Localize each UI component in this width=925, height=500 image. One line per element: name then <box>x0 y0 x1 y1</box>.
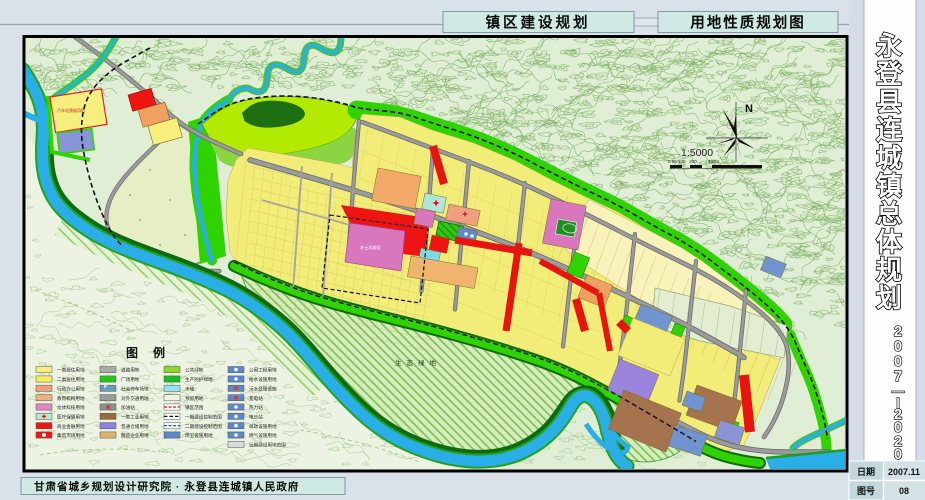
svg-text:远期建设用地范围: 远期建设用地范围 <box>249 442 286 449</box>
svg-text:1:5000: 1:5000 <box>681 147 713 159</box>
svg-text:甘肃省城乡规划设计研究院 · 永登县连城镇人民政府: 甘肃省城乡规划设计研究院 · 永登县连城镇人民政府 <box>34 480 299 493</box>
svg-text:镇区范围: 镇区范围 <box>185 404 204 411</box>
svg-text:生产防护绿地: 生产防护绿地 <box>185 376 213 383</box>
svg-text:公共绿地: 公共绿地 <box>185 367 204 374</box>
svg-text:N: N <box>745 103 753 115</box>
svg-text:镇: 镇 <box>876 171 902 201</box>
svg-text:给水设施用地: 给水设施用地 <box>249 376 277 383</box>
svg-text:预留用地: 预留用地 <box>185 395 204 402</box>
svg-text:医疗保健用地: 医疗保健用地 <box>57 413 85 420</box>
svg-text:公用工程用地: 公用工程用地 <box>249 367 277 374</box>
svg-text:永: 永 <box>876 31 902 61</box>
svg-text:集贸市场用地: 集贸市场用地 <box>57 432 85 439</box>
svg-text:7: 7 <box>894 368 902 385</box>
svg-text:规: 规 <box>876 255 902 285</box>
svg-text:燃气设施用地: 燃气设施用地 <box>249 432 277 439</box>
svg-text:道路用地: 道路用地 <box>121 367 140 374</box>
svg-text:热力站: 热力站 <box>249 404 263 411</box>
svg-text:一类工业用地: 一类工业用地 <box>121 413 149 420</box>
svg-text:登: 登 <box>875 59 903 89</box>
svg-text:社会停车场地: 社会停车场地 <box>121 385 149 392</box>
svg-text:酿造企业用地: 酿造企业用地 <box>121 432 149 439</box>
svg-text:2007.11: 2007.11 <box>888 467 920 477</box>
svg-text:广场用地: 广场用地 <box>121 376 140 383</box>
svg-text:图例: 图例 <box>126 345 180 360</box>
svg-text:城: 城 <box>876 143 902 173</box>
svg-text:普通仓储用地: 普通仓储用地 <box>121 423 149 430</box>
svg-text:一期建设控制范围: 一期建设控制范围 <box>185 413 222 420</box>
svg-text:教育机构用地: 教育机构用地 <box>57 395 85 402</box>
svg-text:对外交通用地: 对外交通用地 <box>121 395 149 402</box>
svg-text:图号: 图号 <box>857 486 875 496</box>
svg-text:P: P <box>104 384 107 389</box>
svg-text:体: 体 <box>876 227 903 257</box>
svg-text:08: 08 <box>899 486 909 496</box>
svg-text:加油站: 加油站 <box>121 404 135 411</box>
svg-text:行政办公用地: 行政办公用地 <box>57 385 85 392</box>
svg-text:二类居住用地: 二类居住用地 <box>57 376 85 383</box>
svg-text:划: 划 <box>876 283 902 313</box>
svg-text:0 50 100 200 400m: 0 50 100 200 400m <box>668 159 720 164</box>
svg-text:连: 连 <box>876 115 903 145</box>
svg-text:电信站: 电信站 <box>249 413 263 420</box>
svg-text:生态绿地: 生态绿地 <box>395 358 441 367</box>
svg-text:水域: 水域 <box>185 385 195 391</box>
svg-text:一类居住用地: 一类居住用地 <box>57 367 85 374</box>
svg-text:汽车站预留用地: 汽车站预留用地 <box>57 107 85 113</box>
svg-text:污水处理设施: 污水处理设施 <box>249 385 277 392</box>
svg-text:0: 0 <box>894 446 902 463</box>
svg-text:镇区建设规划: 镇区建设规划 <box>486 14 591 32</box>
svg-text:环卫设施用地: 环卫设施用地 <box>185 432 213 439</box>
svg-text:县: 县 <box>876 87 902 117</box>
svg-text:文体科技用地: 文体科技用地 <box>57 404 85 411</box>
svg-text:变电站: 变电站 <box>249 395 263 402</box>
svg-text:乡土风貌区: 乡土风貌区 <box>360 244 381 251</box>
svg-text:二期建设控制范围: 二期建设控制范围 <box>185 423 222 430</box>
svg-text:总: 总 <box>876 199 902 229</box>
svg-text:邮政设施用地: 邮政设施用地 <box>249 423 277 430</box>
svg-text:日期: 日期 <box>857 466 875 477</box>
svg-text:商业金融用地: 商业金融用地 <box>57 423 85 430</box>
svg-text:用地性质规划图: 用地性质规划图 <box>690 14 806 32</box>
